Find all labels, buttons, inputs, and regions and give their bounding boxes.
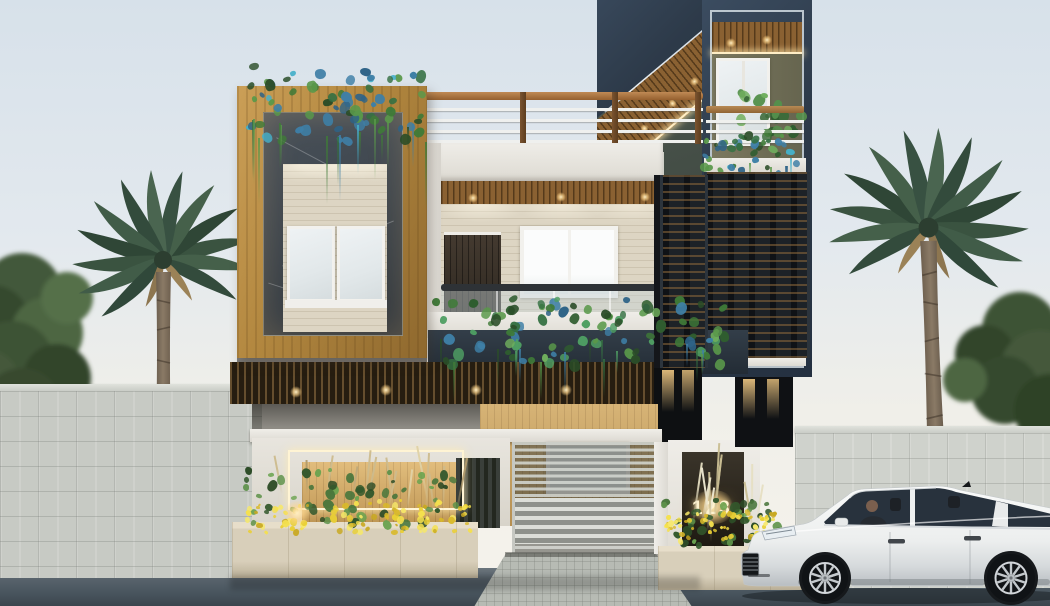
foliage-leaf [354, 501, 359, 506]
front-grille [742, 553, 759, 576]
foliage-leaf [576, 334, 589, 347]
fog-slot [748, 574, 770, 577]
foliage-vine [540, 362, 542, 399]
foliage-vine [374, 119, 376, 180]
foliage-vine [279, 123, 281, 169]
seat-headrest [890, 498, 901, 511]
foliage-leaf [620, 337, 627, 345]
foliage-leaf [418, 472, 425, 479]
foliage-leaf [440, 316, 447, 325]
foliage-leaf [243, 484, 249, 491]
foliage-vine [412, 124, 414, 166]
foliage-leaf [401, 508, 406, 513]
tower-light [762, 35, 772, 45]
foliage-leaf [391, 529, 399, 536]
foliage-leaf [467, 505, 471, 509]
foliage-leaf [335, 526, 344, 535]
foliage-leaf [550, 350, 558, 357]
foliage-leaf [568, 358, 581, 372]
pier-uplight [767, 379, 779, 419]
foliage-leaf [567, 312, 581, 327]
foliage-leaf [713, 357, 727, 372]
foliage-leaf [349, 523, 356, 527]
foliage-leaf [288, 87, 298, 97]
foliage-leaf [763, 127, 773, 137]
block-window-right [337, 226, 385, 302]
foliage-leaf [308, 484, 315, 491]
foliage-vine [564, 352, 566, 393]
foliage-leaf [264, 530, 269, 535]
foliage-leaf [248, 62, 259, 71]
foliage-leaf [396, 515, 404, 525]
foliage-leaf [433, 529, 438, 534]
main-gate[interactable] [512, 442, 660, 554]
foliage-leaf [684, 511, 690, 517]
foliage-leaf [416, 478, 423, 485]
foliage-leaf [300, 466, 314, 480]
foliage-leaf [246, 81, 256, 91]
door-handle [964, 536, 981, 541]
black-marble-pier-right [735, 377, 793, 447]
gate-ground-shadow [505, 552, 661, 557]
foliage-leaf [428, 485, 433, 489]
door-handle [888, 539, 905, 544]
foliage-leaf [713, 498, 719, 503]
foliage-vine [589, 338, 591, 366]
foliage-leaf [673, 525, 677, 529]
balcony-light [468, 193, 478, 203]
foliage-leaf [298, 124, 311, 137]
wall-cap-right [795, 426, 1050, 433]
foliage-leaf [508, 294, 519, 304]
foliage-vine [387, 120, 389, 170]
foliage-leaf [452, 528, 458, 533]
tower-light [726, 38, 736, 48]
planter-uplight [284, 500, 310, 526]
foliage-leaf [251, 95, 258, 103]
foliage-leaf [685, 535, 691, 541]
foliage-leaf [689, 317, 700, 328]
foliage-leaf [346, 515, 353, 523]
foliage-leaf [655, 319, 667, 333]
foliage-leaf [328, 468, 333, 473]
foliage-leaf [367, 74, 376, 82]
foliage-leaf [546, 311, 552, 316]
block-window-glass [290, 229, 332, 299]
foliage-leaf [340, 135, 353, 147]
foliage-leaf [398, 132, 413, 147]
foliage-leaf [346, 473, 355, 484]
foliage-leaf [580, 318, 591, 329]
foliage-leaf [465, 522, 470, 526]
balcony-light [640, 192, 650, 202]
foliage-leaf [695, 512, 699, 517]
foliage-vine [326, 136, 328, 205]
foliage-leaf [707, 530, 711, 534]
foliage-leaf [356, 521, 361, 526]
foliage-leaf [397, 124, 404, 132]
foliage-leaf [303, 109, 314, 120]
foliage-leaf [792, 159, 801, 168]
foliage-vine [253, 119, 255, 184]
foliage-leaf [292, 528, 300, 536]
foliage-leaf [341, 502, 349, 509]
balcony-light [556, 192, 566, 202]
car-white-sedan [738, 474, 1050, 606]
foliage-leaf [371, 513, 379, 521]
foliage-leaf [414, 119, 422, 124]
foliage-leaf [278, 504, 285, 511]
foliage-leaf [751, 156, 759, 163]
foliage-leaf [264, 78, 277, 92]
foliage-leaf [315, 469, 323, 478]
foliage-leaf [666, 528, 670, 533]
foliage-vine [515, 351, 517, 376]
foliage-leaf [780, 134, 785, 139]
porch-light [470, 384, 482, 396]
foliage-leaf [727, 533, 735, 541]
foliage-leaf [417, 89, 427, 99]
antenna-fin [962, 481, 971, 487]
foliage-leaf [329, 514, 338, 524]
foliage-vine [701, 354, 703, 375]
foliage-leaf [720, 510, 728, 518]
yellow-flowers [330, 494, 410, 540]
foliage-leaf [780, 140, 788, 148]
terrace-rail-post [520, 92, 526, 144]
tower-rail-wood [706, 106, 804, 113]
foliage-leaf [632, 347, 641, 357]
foliage-leaf [314, 69, 326, 81]
wall-cap-left [0, 384, 262, 391]
foliage-vine [601, 340, 603, 372]
foliage-leaf [448, 476, 458, 485]
b-pillar [910, 489, 915, 527]
foliage-leaf [244, 466, 252, 475]
foliage-leaf [442, 332, 457, 347]
foliage-leaf [272, 515, 276, 519]
foliage-leaf [439, 517, 445, 522]
foliage-leaf [697, 300, 704, 308]
yellow-flowers-right [664, 512, 718, 548]
foliage-vine [497, 349, 499, 386]
foliage-leaf [390, 479, 395, 483]
foliage-vine [519, 349, 521, 384]
foliage-vine [425, 142, 427, 209]
foliage-leaf [255, 493, 262, 499]
foliage-leaf [724, 536, 728, 541]
rooftop-hanging-plants [246, 62, 434, 158]
balcony-hanging-plants [426, 294, 750, 378]
foliage-leaf [527, 356, 536, 365]
foliage-leaf [469, 329, 477, 336]
terrace-rail-post [612, 92, 618, 144]
soffit-light [690, 77, 699, 86]
tower-soffit [712, 22, 802, 54]
foliage-leaf [254, 121, 264, 129]
seat-headrest [948, 496, 960, 508]
tower-rail [706, 120, 804, 123]
foliage-leaf [400, 486, 407, 493]
foliage-leaf [679, 532, 685, 538]
foliage-leaf [448, 299, 459, 310]
compound-wall-left [0, 391, 262, 578]
foliage-leaf [467, 527, 473, 534]
foliage-leaf [254, 511, 259, 515]
foliage-vine [440, 339, 442, 376]
foliage-leaf [334, 125, 344, 133]
foliage-leaf [674, 336, 684, 347]
foliage-leaf [364, 526, 370, 532]
pier-uplight [743, 379, 755, 419]
foliage-leaf [244, 476, 250, 483]
house-ground-shadow [230, 576, 700, 590]
block-window-sill [285, 300, 387, 308]
foliage-leaf [766, 138, 772, 143]
foliage-leaf [256, 506, 260, 509]
foliage-leaf [283, 76, 292, 84]
scene-render: 123 [0, 0, 1050, 606]
foliage-leaf [678, 317, 688, 326]
foliage-leaf [368, 502, 372, 505]
foliage-leaf [703, 517, 708, 521]
foliage-vine [603, 359, 605, 397]
foliage-leaf [267, 473, 274, 478]
foliage-leaf [645, 332, 655, 340]
foliage-leaf [434, 500, 440, 507]
foliage-vine [381, 135, 383, 160]
foliage-vine [616, 351, 618, 372]
foliage-leaf [677, 537, 684, 545]
foliage-leaf [722, 525, 726, 529]
soffit-light [668, 99, 677, 108]
foliage-leaf [583, 304, 593, 315]
balustrade-handrail [441, 284, 663, 291]
foliage-leaf [394, 523, 398, 527]
foliage-leaf [247, 529, 252, 533]
foliage-leaf [358, 514, 363, 519]
block-window-left [287, 226, 335, 302]
porch-light [380, 384, 392, 396]
foliage-leaf [363, 83, 374, 94]
foliage-leaf [760, 92, 768, 98]
foliage-leaf [360, 95, 369, 104]
foliage-leaf [677, 523, 683, 529]
foliage-leaf [712, 343, 723, 355]
foliage-leaf [622, 296, 630, 304]
foliage-leaf [387, 469, 393, 475]
foliage-leaf [322, 113, 334, 127]
foliage-leaf [388, 97, 398, 106]
foliage-leaf [703, 137, 711, 145]
foliage-leaf [375, 94, 386, 104]
foliage-leaf [245, 517, 251, 524]
foliage-leaf [569, 302, 578, 311]
driver-head [866, 500, 878, 512]
foliage-leaf [648, 338, 655, 345]
foliage-leaf [468, 297, 480, 309]
foliage-vine [258, 138, 260, 204]
foliage-vine [407, 127, 409, 151]
rear-wheel [987, 554, 1035, 602]
foliage-leaf [261, 131, 275, 145]
foliage-vine [696, 349, 698, 382]
block-window-glass [340, 229, 382, 299]
foliage-leaf [399, 499, 402, 502]
porch-light [290, 386, 302, 398]
foliage-leaf [439, 470, 449, 482]
side-mirror [835, 518, 848, 526]
foliage-leaf [718, 303, 729, 313]
foliage-leaf [785, 148, 794, 155]
foliage-leaf [345, 74, 357, 86]
foliage-vine [453, 362, 455, 401]
gate-bottom-panel [515, 498, 657, 544]
foliage-leaf [289, 70, 296, 77]
foliage-leaf [707, 520, 715, 528]
foliage-vine [686, 344, 688, 367]
yellow-flowers [416, 500, 478, 540]
foliage-leaf [382, 502, 389, 507]
front-wheel [802, 555, 848, 601]
foliage-vine [339, 135, 341, 201]
foliage-leaf [432, 297, 441, 306]
foliage-vine [359, 132, 361, 158]
foliage-leaf [258, 91, 265, 98]
foliage-leaf [690, 526, 694, 530]
foliage-leaf [460, 512, 465, 517]
terrace-rail-post [695, 92, 701, 144]
